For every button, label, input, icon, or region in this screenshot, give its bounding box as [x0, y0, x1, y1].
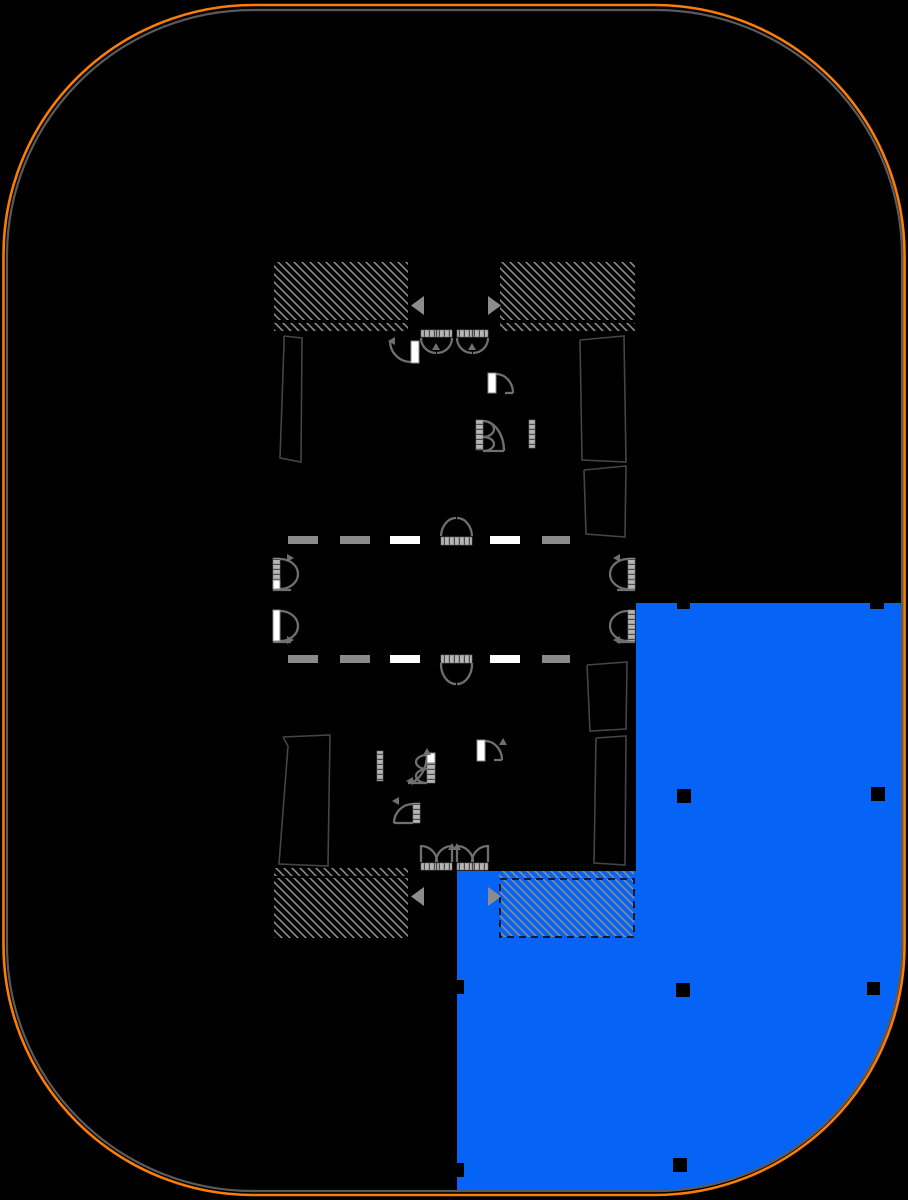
door-leaf	[273, 558, 280, 580]
door-leaf	[421, 330, 436, 337]
column	[871, 787, 885, 801]
door-leaf	[457, 863, 472, 870]
door-leaf	[628, 558, 635, 580]
column	[673, 1158, 687, 1172]
door-leaf	[488, 373, 496, 393]
column	[450, 1163, 464, 1177]
door-leaf	[413, 803, 420, 823]
column	[867, 982, 880, 995]
floor-plan	[0, 0, 908, 1200]
door-leaf	[421, 863, 436, 870]
stair-shaft-bottom-right-dashed	[500, 879, 634, 937]
corridor-dash	[340, 655, 370, 663]
door-leaf	[473, 330, 488, 337]
wall-bar	[377, 751, 383, 781]
corridor-dash	[288, 536, 318, 544]
stair-shaft-bottom-left	[274, 878, 408, 938]
corridor-dash	[542, 655, 570, 663]
column	[676, 983, 690, 997]
corridor-dash	[288, 655, 318, 663]
door-leaf	[411, 341, 419, 363]
corridor-dash	[542, 536, 570, 544]
corridor-dash	[490, 655, 520, 663]
door-leaf	[441, 655, 472, 663]
door-leaf	[441, 537, 472, 545]
door-leaf	[273, 580, 280, 589]
corridor-dash	[390, 536, 420, 544]
door-leaf	[473, 863, 488, 870]
door-leaf	[457, 330, 472, 337]
stair-shaft-top-left	[274, 262, 408, 320]
corridor-dash	[490, 536, 520, 544]
corridor-dash	[340, 536, 370, 544]
door-leaf	[628, 580, 635, 589]
column	[677, 603, 690, 609]
hatch-band	[274, 868, 408, 876]
floor-plan-canvas	[0, 0, 908, 1200]
door-leaf	[476, 420, 483, 450]
hatch-band	[499, 871, 634, 878]
door-leaf	[437, 330, 452, 337]
door-leaf	[437, 863, 452, 870]
hatch-band	[500, 323, 635, 331]
door-leaf	[427, 763, 435, 783]
column	[870, 603, 884, 609]
corridor-dash	[390, 655, 420, 663]
stair-shaft-top-right	[500, 262, 635, 320]
hatch-band	[274, 323, 408, 331]
door-leaf	[477, 740, 485, 761]
door-leaf	[273, 610, 280, 641]
wall-bar	[529, 420, 535, 448]
column	[450, 980, 464, 994]
door-leaf	[628, 610, 635, 641]
column	[677, 789, 691, 803]
